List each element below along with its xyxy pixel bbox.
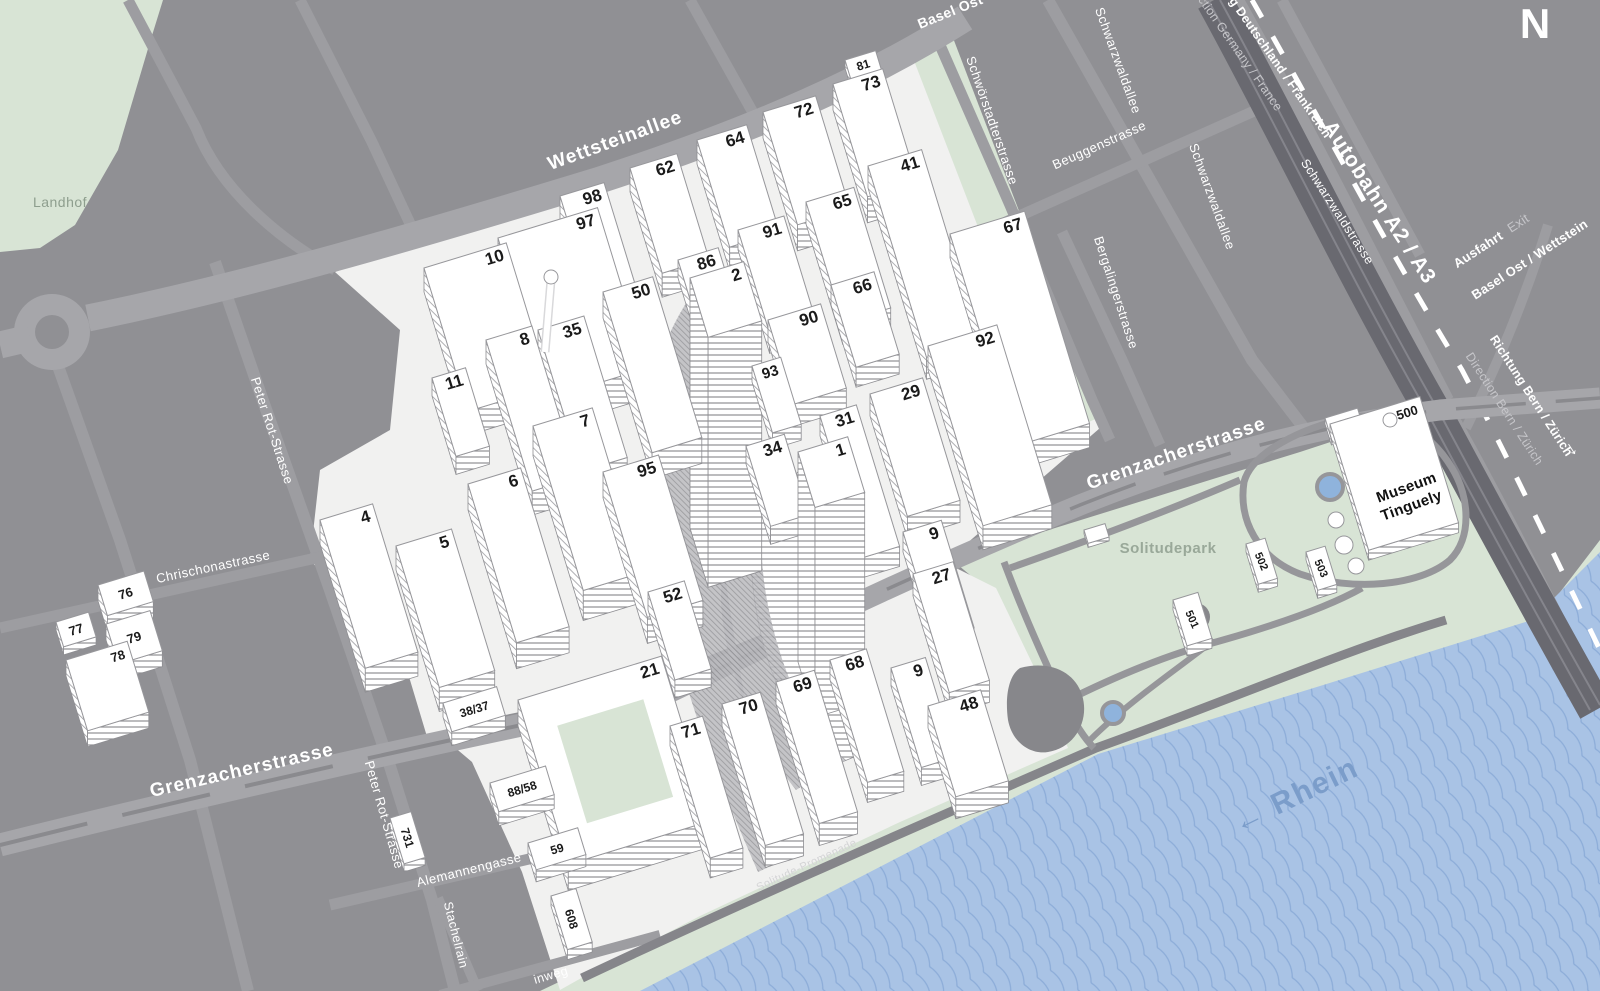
building-2: 2 xyxy=(690,262,762,588)
map-label-landhof: Landhof xyxy=(33,194,87,210)
map-stage: 8173726441629865916797861026650903589293… xyxy=(0,0,1600,991)
site-map: 8173726441629865916797861026650903589293… xyxy=(0,0,1600,991)
pond-lower xyxy=(1102,702,1124,724)
pond-upper xyxy=(1317,474,1343,500)
map-label-solitudepark: Solitudepark xyxy=(1120,540,1217,557)
compass-n-label: N xyxy=(1520,0,1550,47)
